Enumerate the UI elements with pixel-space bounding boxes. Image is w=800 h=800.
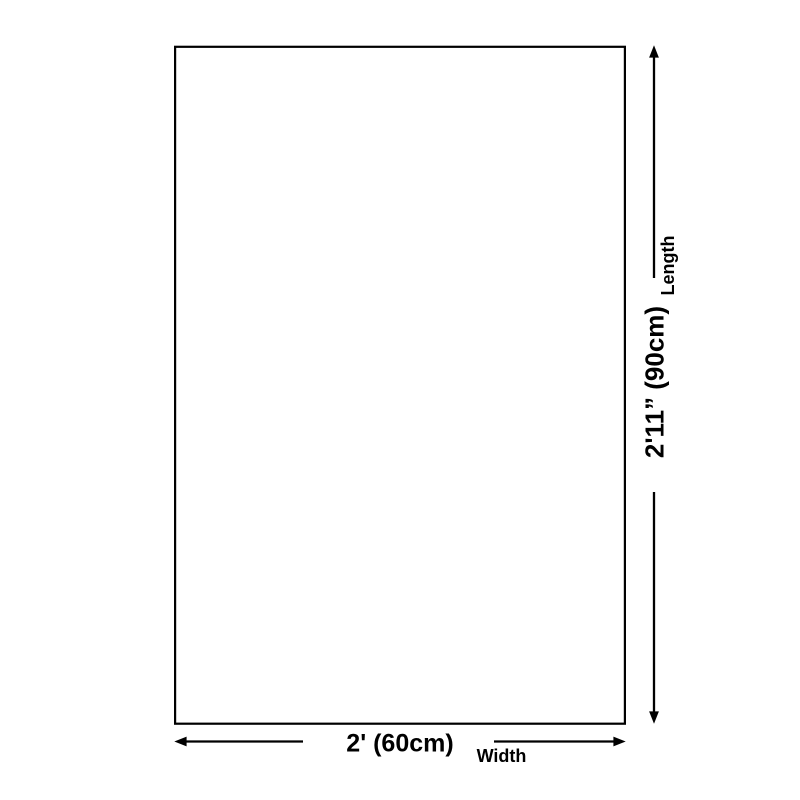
svg-text:Length: Length: [658, 236, 678, 296]
svg-text:Width: Width: [477, 746, 527, 766]
svg-text:2'11” (90cm): 2'11” (90cm): [640, 306, 670, 458]
svg-text:2' (60cm): 2' (60cm): [346, 730, 453, 758]
